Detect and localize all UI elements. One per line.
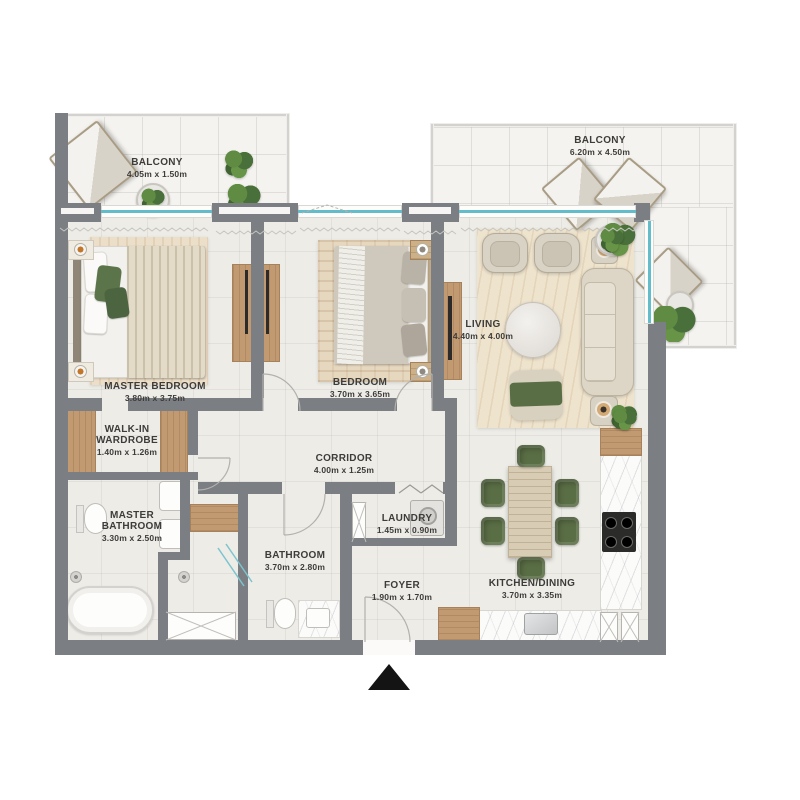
room-dims: 4.40m x 4.00m xyxy=(423,331,543,341)
wall-corridor-south-2 xyxy=(325,482,352,494)
balcony-right-railing-right xyxy=(733,123,737,349)
bathroom-sink xyxy=(306,608,330,628)
room-dims: 6.20m x 4.50m xyxy=(540,147,660,157)
bathroom-toilet-tank xyxy=(266,600,274,628)
wall-master-bedroom-bedroom xyxy=(251,220,264,398)
wall-bedroom-living xyxy=(431,220,444,398)
bathroom-toilet xyxy=(274,598,296,629)
bedroom-window-glass xyxy=(298,210,402,213)
wall-bottom-1 xyxy=(55,640,363,655)
wall-wardrobe-south xyxy=(55,472,198,480)
wall-laundry-south xyxy=(352,538,457,546)
wall-left-outer xyxy=(55,113,68,655)
living-window-glass xyxy=(459,210,636,213)
label-bathroom: BATHROOM 3.70m x 2.80m xyxy=(235,550,355,572)
kitchen-appliance-1 xyxy=(600,612,618,642)
kitchen-plant xyxy=(612,410,638,430)
dining-chair-bottom xyxy=(517,557,545,579)
room-name: MASTER BEDROOM xyxy=(75,381,235,392)
dining-chair-top xyxy=(517,445,545,467)
master-bed-duvet xyxy=(127,246,205,378)
master-bedroom-window-glass xyxy=(101,210,212,213)
living-armchair-1-cushion xyxy=(490,241,520,267)
dining-chair-right-2 xyxy=(555,517,579,545)
master-lamp-bottom xyxy=(74,365,87,378)
wall-bottom-2 xyxy=(415,640,666,655)
room-name: FOYER xyxy=(342,580,462,591)
room-name: BALCONY xyxy=(540,135,660,146)
label-laundry: LAUNDRY 1.45m x 0.90m xyxy=(347,513,467,535)
wall-wardrobe-corridor xyxy=(188,411,198,455)
kitchen-appliance-2 xyxy=(621,612,639,642)
wall-laundry-north-1 xyxy=(352,482,395,494)
bedroom-pillow-2 xyxy=(402,288,426,322)
corridor-linen-closet xyxy=(190,504,240,532)
wall-top-pier-a-inset xyxy=(61,208,94,214)
label-bedroom: BEDROOM 3.70m x 3.65m xyxy=(290,377,430,399)
label-master-bedroom: MASTER BEDROOM 3.80m x 3.75m xyxy=(75,381,235,403)
balcony-right-railing-top xyxy=(430,123,737,127)
room-dims: 1.40m x 1.26m xyxy=(77,447,177,457)
dining-chair-right-1 xyxy=(555,479,579,507)
master-lamp-top xyxy=(74,243,87,256)
wall-corridor-north-4 xyxy=(432,398,457,411)
room-dims: 4.05m x 1.50m xyxy=(97,169,217,179)
room-name: CORRIDOR xyxy=(284,453,404,464)
wall-corridor-north-3 xyxy=(298,398,397,411)
master-wardrobe-handle-right xyxy=(266,270,269,334)
entrance-arrow-icon xyxy=(368,664,410,690)
shaft-box-bath xyxy=(166,612,236,640)
room-name: BEDROOM xyxy=(290,377,430,388)
wall-right-outer xyxy=(648,322,666,655)
room-name: KITCHEN/DINING xyxy=(472,578,592,589)
room-name: WALK-IN WARDROBE xyxy=(77,424,177,446)
room-dims: 3.70m x 3.65m xyxy=(290,389,430,399)
balcony-right-railing-left xyxy=(430,123,434,208)
kitchen-sink xyxy=(524,613,558,635)
room-name: LAUNDRY xyxy=(347,513,467,524)
room-name: MASTER BATHROOM xyxy=(82,510,182,532)
dining-chair-left-1 xyxy=(481,479,505,507)
dining-chair-left-2 xyxy=(481,517,505,545)
label-kitchen-dining: KITCHEN/DINING 3.70m x 3.35m xyxy=(472,578,592,600)
master-wardrobe-handle-left xyxy=(245,270,248,334)
balcony-left-railing-top xyxy=(62,113,290,117)
wall-corridor-south-1 xyxy=(198,482,282,494)
room-name: BALCONY xyxy=(97,157,217,168)
floor-plan-page: { "floorplan": { "rooms": { "balcony_lef… xyxy=(0,0,800,800)
room-dims: 3.80m x 3.75m xyxy=(75,393,235,403)
master-bath-tub xyxy=(66,586,154,634)
master-bed-headboard xyxy=(73,244,81,380)
dining-table xyxy=(508,466,552,558)
room-dims: 4.00m x 1.25m xyxy=(284,465,404,475)
label-corridor: CORRIDOR 4.00m x 1.25m xyxy=(284,453,404,475)
living-pouf-throw xyxy=(510,381,563,407)
entry-door-threshold xyxy=(363,640,415,655)
master-bed-pillow-green-2 xyxy=(104,287,130,320)
label-balcony-left: BALCONY 4.05m x 1.50m xyxy=(97,157,217,179)
balcony-left-railing-right xyxy=(286,113,290,208)
balcony-right-dish-plant xyxy=(600,228,624,252)
shower-head-2 xyxy=(178,571,190,583)
living-armchair-2-cushion xyxy=(542,241,572,267)
label-master-bathroom: MASTER BATHROOM 3.30m x 2.50m xyxy=(82,510,182,543)
bedroom-throw-blanket xyxy=(337,246,365,364)
shower-head-1 xyxy=(70,571,82,583)
room-dims: 1.90m x 1.70m xyxy=(342,592,462,602)
label-living: LIVING 4.40m x 4.00m xyxy=(423,319,543,341)
room-name: BATHROOM xyxy=(235,550,355,561)
kitchen-cabinet-top xyxy=(600,428,642,456)
room-dims: 1.45m x 0.90m xyxy=(347,525,467,535)
living-balcony-slider-glass xyxy=(648,221,651,323)
label-walk-in-wardrobe: WALK-IN WARDROBE 1.40m x 1.26m xyxy=(77,424,177,457)
room-dims: 3.70m x 2.80m xyxy=(235,562,355,572)
wall-master-bath-east-lower xyxy=(158,552,168,644)
room-dims: 3.70m x 3.35m xyxy=(472,590,592,600)
room-name: LIVING xyxy=(423,319,543,330)
kitchen-stove xyxy=(602,512,636,552)
label-balcony-right: BALCONY 6.20m x 4.50m xyxy=(540,135,660,157)
foyer-kitchen-cabinet xyxy=(438,607,480,641)
wall-top-pier-b-inset xyxy=(219,207,290,214)
label-foyer: FOYER 1.90m x 1.70m xyxy=(342,580,462,602)
living-sofa-seat xyxy=(584,282,616,382)
room-dims: 3.30m x 2.50m xyxy=(82,533,182,543)
wall-top-pier-c-inset xyxy=(409,207,451,214)
bedroom-lamp-top xyxy=(416,243,429,256)
balcony-left-plant-1 xyxy=(224,150,254,178)
